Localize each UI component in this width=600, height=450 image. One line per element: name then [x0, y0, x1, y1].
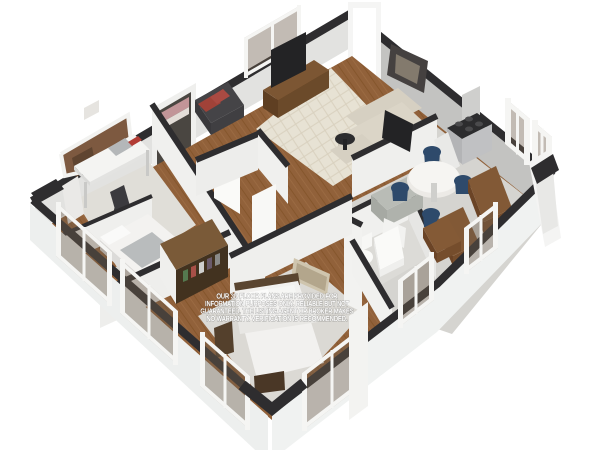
svg-text:NO WARRANTY. VERIFICATION IS R: NO WARRANTY. VERIFICATION IS RECOMMENDED… [207, 314, 348, 323]
